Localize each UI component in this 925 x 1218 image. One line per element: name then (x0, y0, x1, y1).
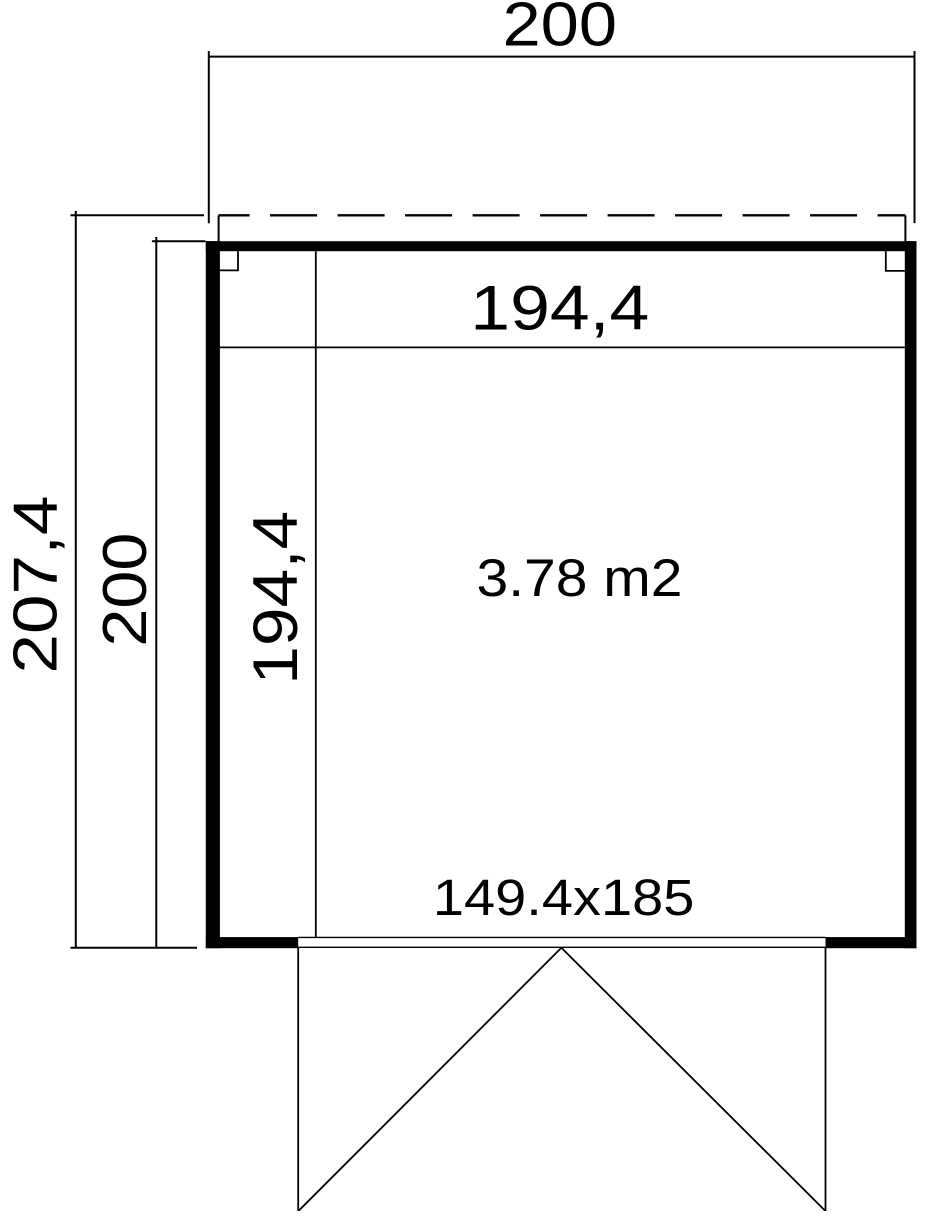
svg-text:194,4: 194,4 (241, 511, 311, 685)
svg-text:207,4: 207,4 (1, 496, 70, 674)
svg-text:3.78 m2: 3.78 m2 (477, 549, 683, 608)
svg-text:149.4x185: 149.4x185 (433, 869, 695, 926)
svg-text:200: 200 (503, 0, 618, 59)
svg-text:194,4: 194,4 (470, 274, 649, 344)
svg-text:200: 200 (91, 533, 160, 647)
